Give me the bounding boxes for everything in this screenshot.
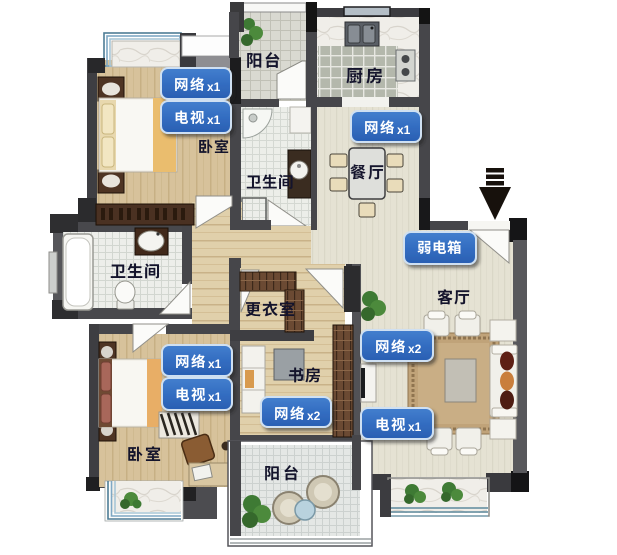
svg-text:x1: x1 bbox=[208, 390, 222, 404]
svg-text:x1: x1 bbox=[208, 357, 222, 371]
svg-text:x1: x1 bbox=[207, 113, 221, 127]
svg-text:x1: x1 bbox=[408, 420, 422, 434]
svg-text:x2: x2 bbox=[408, 342, 422, 356]
svg-text:x1: x1 bbox=[397, 123, 411, 137]
svg-text:x1: x1 bbox=[207, 80, 221, 94]
svg-text:x2: x2 bbox=[307, 409, 321, 423]
